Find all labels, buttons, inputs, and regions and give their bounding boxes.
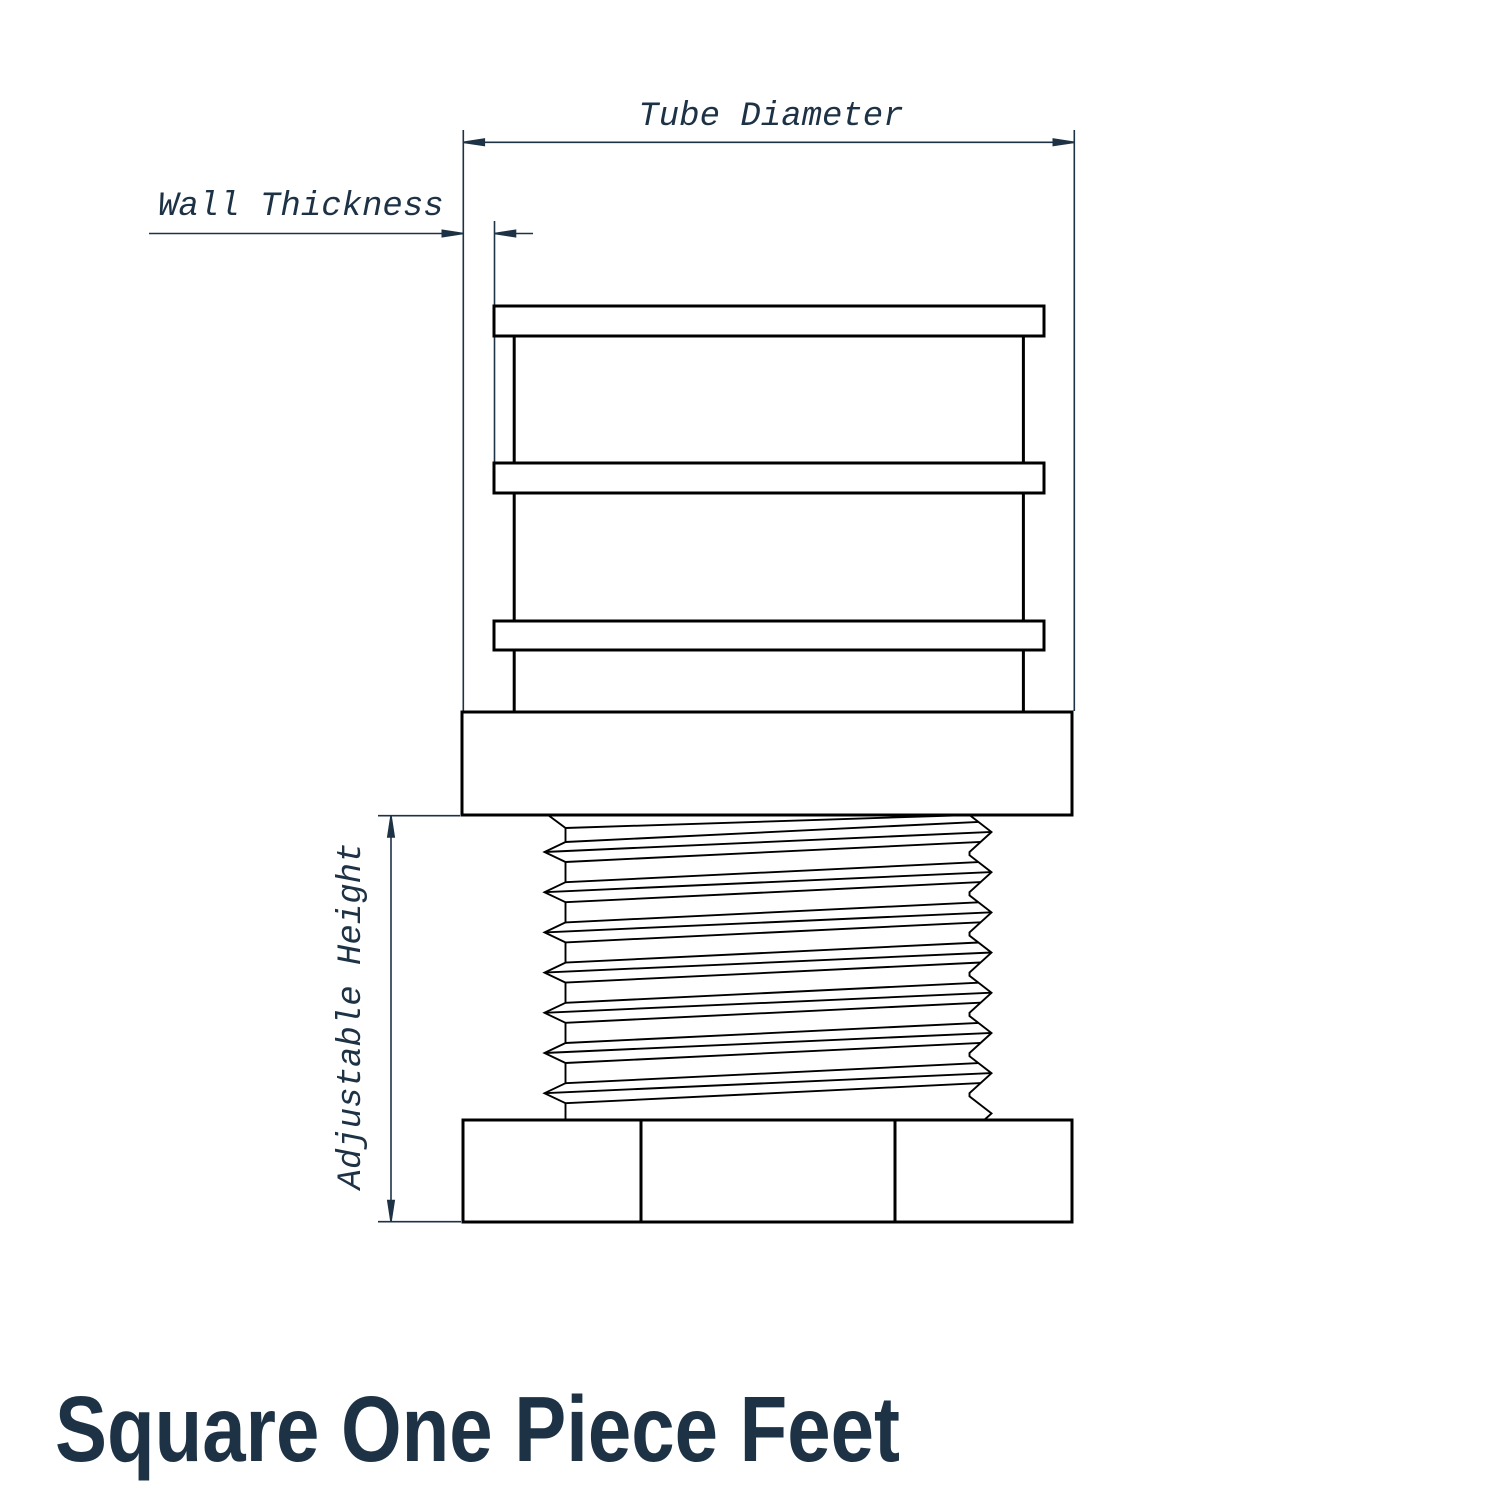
svg-text:Adjustable Height: Adjustable Height	[333, 843, 371, 1192]
svg-text:Square One Piece Feet: Square One Piece Feet	[55, 1377, 900, 1481]
svg-text:Tube Diameter: Tube Diameter	[638, 98, 903, 136]
svg-text:Wall Thickness: Wall Thickness	[158, 188, 444, 226]
